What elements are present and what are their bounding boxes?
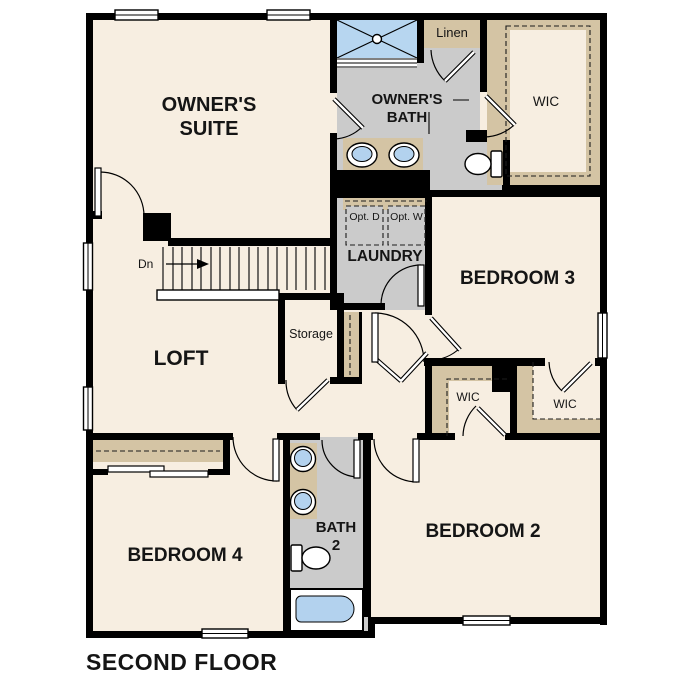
label-opt-washer: Opt. W [388, 211, 425, 225]
sink-basin-icon [347, 143, 419, 167]
label-stairs-dn: Dn [138, 257, 168, 272]
room-label-wic-right: WIC [540, 397, 590, 412]
room-label-loft: LOFT [131, 346, 231, 372]
shower-pan-icon [337, 20, 417, 68]
room-label-laundry: LAUNDRY [341, 248, 429, 267]
bathtub-icon [290, 589, 363, 631]
plan-linework [0, 0, 687, 687]
label-opt-dryer: Opt. D [346, 211, 383, 225]
room-label-bath2: BATH 2 [310, 519, 362, 556]
page-title: SECOND FLOOR [86, 648, 366, 676]
room-label-linen: Linen [424, 25, 480, 41]
room-label-wic-left: WIC [443, 390, 493, 405]
floor-plan: OWNER'S SUITE OWNER'S BATH Linen WIC LAU… [0, 0, 687, 687]
room-label-bedroom3: BEDROOM 3 [432, 267, 603, 290]
sink-basin-icon [291, 447, 316, 515]
stair-treads-icon [157, 247, 325, 300]
room-label-wic-owner: WIC [517, 94, 575, 110]
room-label-owners-bath: OWNER'S BATH [362, 91, 452, 128]
bypass-closet-doors [108, 466, 208, 477]
room-label-owners-suite: OWNER'S SUITE [134, 93, 284, 142]
room-label-bedroom2: BEDROOM 2 [397, 520, 569, 543]
room-label-bedroom4: BEDROOM 4 [99, 544, 271, 567]
toilet-icon [465, 151, 502, 177]
room-label-storage: Storage [277, 327, 345, 342]
